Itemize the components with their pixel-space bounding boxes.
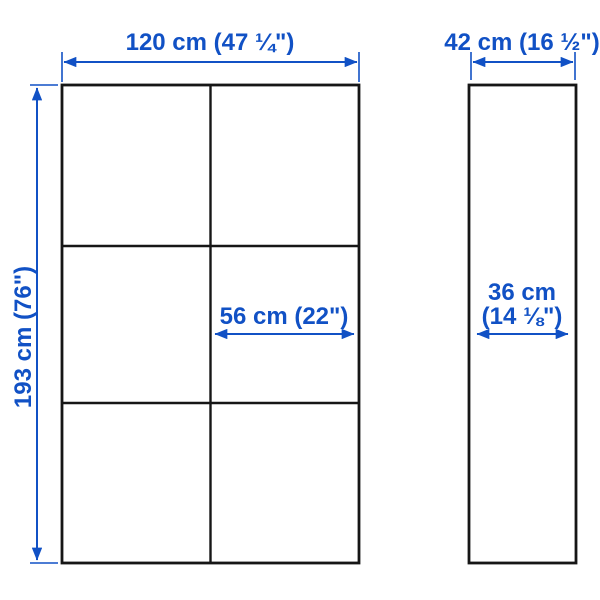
dimension-diagram-svg: 120 cm (47 ¼") 42 cm (16 ½") 193 cm (76"…	[0, 0, 600, 600]
section-width-dimension-label: 56 cm (22")	[220, 303, 349, 330]
width-dimension-label: 120 cm (47 ¼")	[126, 29, 295, 56]
depth-dimension-label: 42 cm (16 ½")	[444, 29, 599, 56]
inner-depth-dimension-label-line1: 36 cm	[488, 279, 556, 306]
dimension-diagram: 120 cm (47 ¼") 42 cm (16 ½") 193 cm (76"…	[0, 0, 600, 600]
inner-depth-dimension-label-line2: (14 ⅛")	[482, 303, 563, 330]
height-dimension-label: 193 cm (76")	[10, 266, 37, 408]
